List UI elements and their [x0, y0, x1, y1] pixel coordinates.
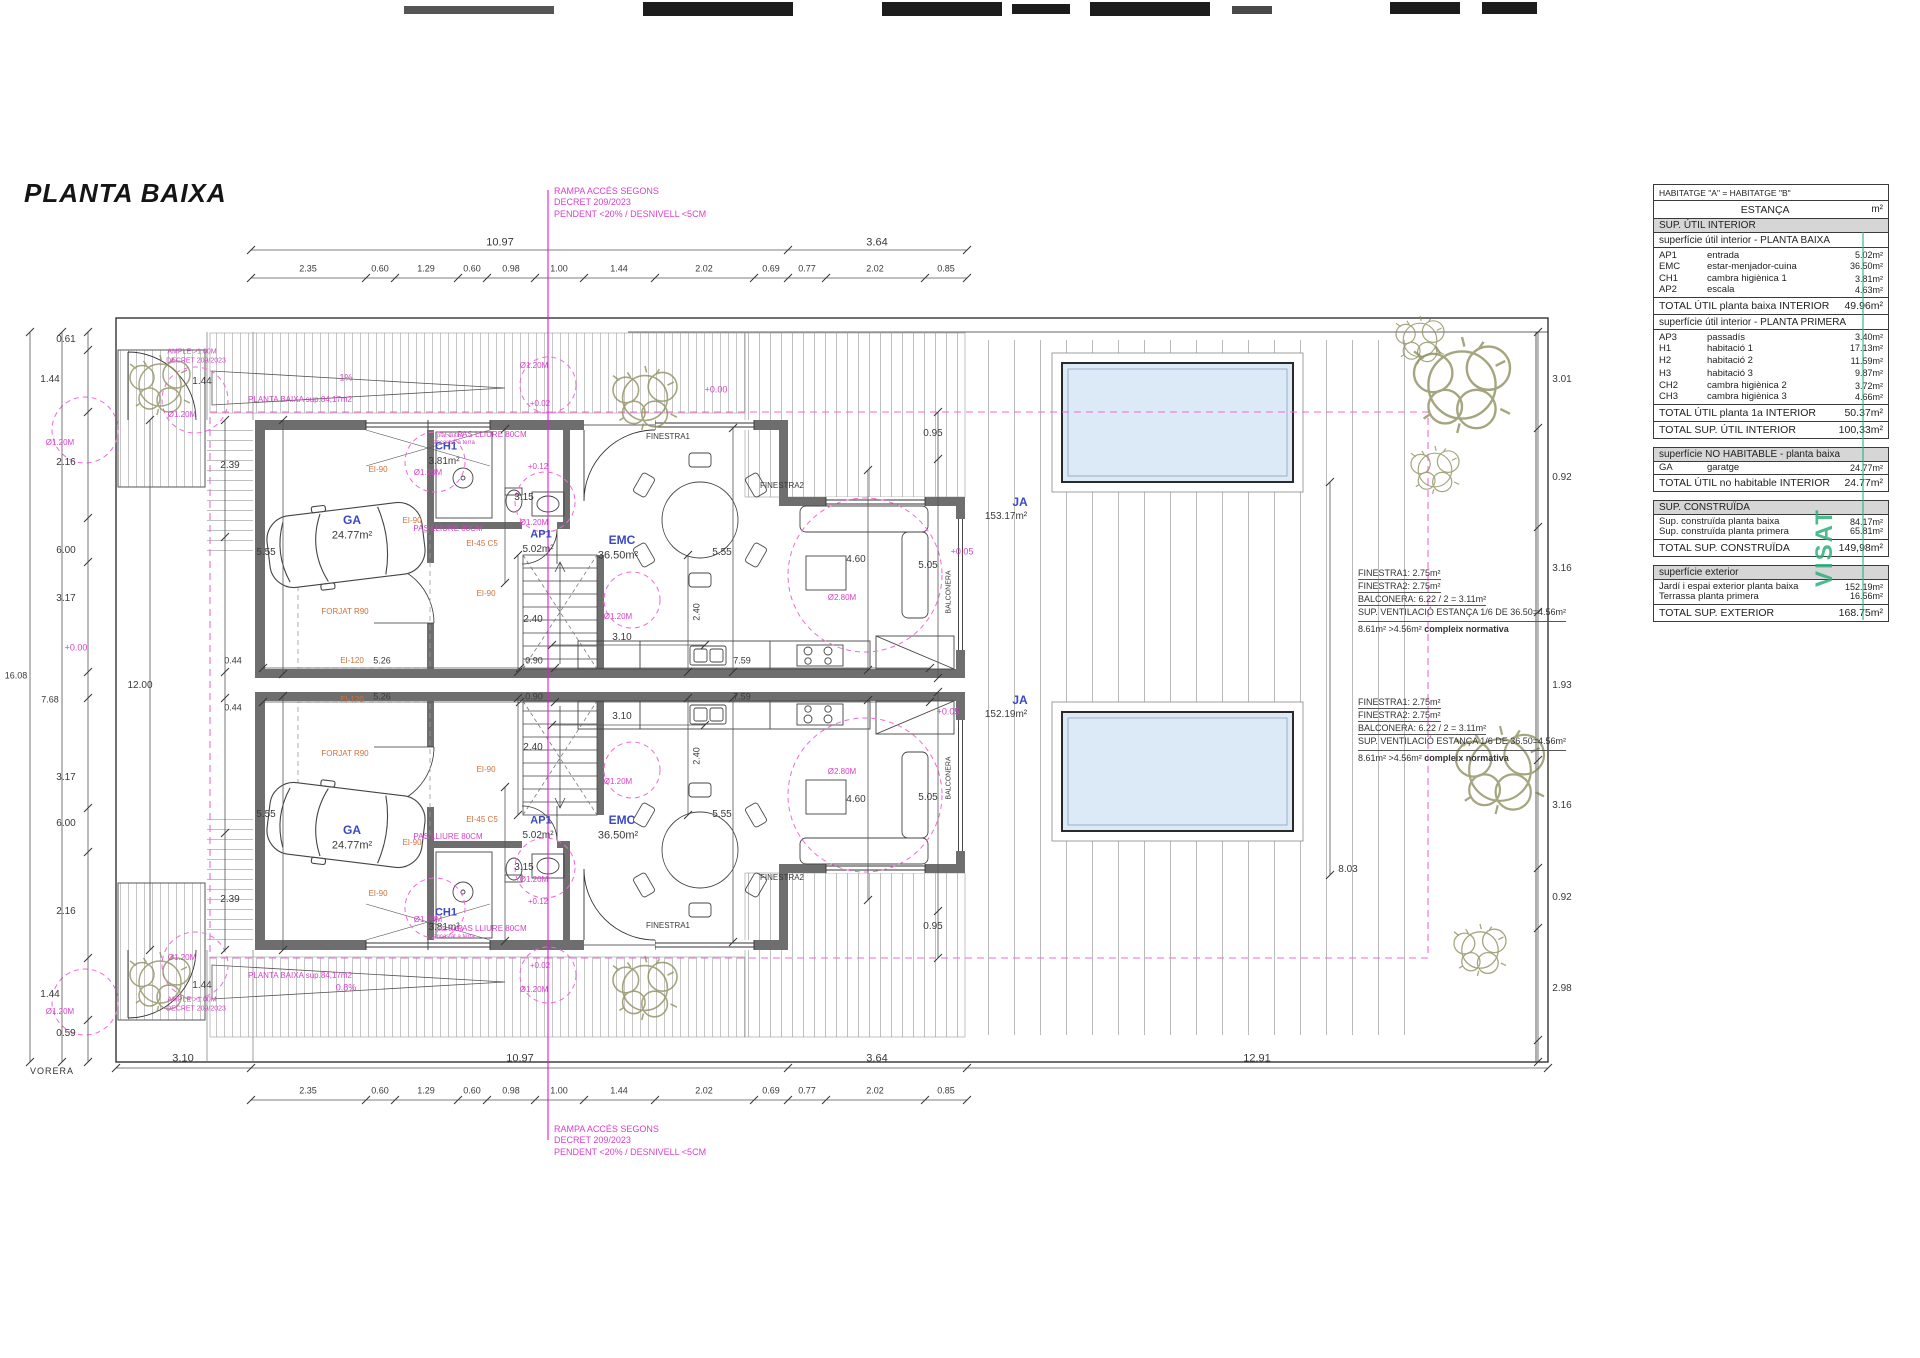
table-row: AP1entrada5.02m² — [1653, 247, 1889, 261]
plan-label: 0.60 — [463, 1087, 481, 1096]
table-row: H1habitació 117.13m² — [1653, 342, 1889, 356]
table-cell: habitació 3 — [1707, 368, 1831, 379]
ventilation-note-line: FINESTRA1: 2.75m² — [1358, 567, 1566, 580]
plan-label: 1.29 — [417, 1087, 435, 1096]
table-row: superfície NO HABITABLE - planta baixa — [1653, 447, 1889, 462]
ventilation-note-upper: FINESTRA1: 2.75m²FINESTRA2: 2.75m²BALCON… — [1358, 567, 1566, 634]
table-row: TOTAL ÚTIL no habitable INTERIOR24.77m² — [1653, 474, 1889, 492]
plan-label: 0.60 — [371, 1087, 389, 1096]
plan-label: DECRET 209/2023 — [166, 358, 226, 365]
plan-label: EMC — [609, 814, 636, 826]
ventilation-note-line: FINESTRA2: 2.75m² — [1358, 580, 1441, 593]
plan-label: 0.60 — [371, 265, 389, 274]
plan-label: 3.15 — [514, 493, 533, 503]
table-cell: superfície útil interior - PLANTA PRIMER… — [1659, 317, 1846, 328]
table-cell: AP1 — [1659, 250, 1707, 261]
plan-label: 1.00 — [550, 1087, 568, 1096]
ventilation-note-line: FINESTRA2: 2.75m² — [1358, 709, 1566, 722]
table-cell: cambra higiènica 2 — [1707, 380, 1831, 391]
plan-label: GA — [343, 824, 361, 836]
table-cell: 4.66m² — [1831, 392, 1883, 402]
table-row: superfície útil interior - PLANTA BAIXA — [1653, 232, 1889, 248]
table-cell: habitació 2 — [1707, 355, 1831, 366]
ventilation-note-line: FINESTRA1: 2.75m² — [1358, 567, 1441, 580]
plan-label: 3.10 — [172, 1054, 193, 1065]
plan-label: PLANTA BAIXA sup.84,17m2 — [248, 396, 352, 404]
table-cell: superfície útil interior - PLANTA BAIXA — [1659, 235, 1830, 246]
ventilation-note-line: FINESTRA2: 2.75m² — [1358, 580, 1566, 593]
plan-label: 5.02m² — [522, 545, 553, 555]
plan-label: plat dutxa — [437, 927, 463, 933]
plan-label: 2.16 — [56, 458, 75, 468]
plan-label: +0.12 — [528, 463, 548, 471]
plan-label: FINESTRA2 — [760, 482, 804, 490]
table-cell: TOTAL ÚTIL planta 1a INTERIOR — [1659, 407, 1816, 419]
table-cell: 149,98m² — [1839, 542, 1883, 554]
table-cell: H1 — [1659, 343, 1707, 354]
floor-plan-svg — [0, 0, 1920, 1358]
ventilation-note-line: 8.61m² >4.56m² compleix normativa — [1358, 750, 1566, 763]
plan-label: 16.08 — [5, 672, 28, 681]
table-row: TOTAL SUP. CONSTRUÏDA149,98m² — [1653, 539, 1889, 557]
plan-label: Ø1.20M — [520, 986, 548, 994]
ventilation-note-line: FINESTRA1: 2.75m² — [1358, 696, 1441, 709]
plan-label: EI-45 C5 — [466, 540, 498, 548]
plan-label: 3.64 — [866, 238, 887, 249]
table-cell: SUP. ÚTIL INTERIOR — [1659, 220, 1756, 231]
pool-upper — [1052, 353, 1303, 492]
plan-label: 3.01 — [1552, 375, 1571, 385]
plan-label: +0.00 — [705, 386, 728, 395]
table-row: TOTAL SUP. EXTERIOR168.75m² — [1653, 604, 1889, 622]
table-cell: 168.75m² — [1839, 607, 1883, 619]
plan-label: PAS LLIURE 80CM — [413, 525, 482, 533]
table-row: HABITATGE "A" = HABITATGE "B" — [1653, 184, 1889, 201]
plan-label: FORJAT R90 — [321, 608, 368, 616]
table-cell: Terrassa planta primera — [1659, 591, 1831, 602]
table-cell: passadís — [1707, 332, 1831, 343]
table-cell: 5.02m² — [1831, 250, 1883, 260]
ventilation-note-lower: FINESTRA1: 2.75m²FINESTRA2: 2.75m²BALCON… — [1358, 696, 1566, 763]
plan-label: 0.69 — [762, 265, 780, 274]
ventilation-note-line: BALCONERA: 6.22 / 2 = 3.11m² — [1358, 722, 1486, 735]
plan-label: 7.59 — [733, 657, 751, 666]
table-cell: GA — [1659, 462, 1707, 473]
table-cell: 84.17m² — [1831, 517, 1883, 527]
ramp-note-line: PENDENT <20% / DESNIVELL <5CM — [554, 1147, 706, 1158]
plan-label: plat dutxa — [437, 433, 463, 439]
pool-lower — [1052, 702, 1303, 841]
table-cell: SUP. CONSTRUÏDA — [1659, 502, 1750, 513]
plan-label: 1.44 — [610, 1087, 628, 1096]
plan-label: Ø1.20M — [46, 439, 74, 447]
plan-label: 1.29 — [417, 265, 435, 274]
plan-label: 0.59 — [56, 1029, 75, 1039]
plan-label: PAS LLIURE 80CM — [413, 833, 482, 841]
plan-label: 152.19m² — [985, 710, 1027, 720]
table-cell: H2 — [1659, 355, 1707, 366]
plan-label: 24.77m² — [332, 531, 372, 542]
plan-label: 5.55 — [256, 810, 275, 820]
plan-label: 3.10 — [612, 633, 631, 643]
plan-label: 0.77 — [798, 265, 816, 274]
table-cell: 16.56m² — [1831, 591, 1883, 601]
table-row: GAgaratge24.77m² — [1653, 461, 1889, 475]
plan-label: BALCONERA — [946, 756, 953, 799]
plan-label: 3.16 — [1552, 801, 1571, 811]
plan-label: 1.44 — [40, 375, 59, 385]
table-cell: 36.50m² — [1831, 261, 1883, 271]
plan-label: 3.17 — [56, 773, 75, 783]
table-cell: TOTAL ÚTIL no habitable INTERIOR — [1659, 477, 1830, 489]
plan-label: 2.02 — [866, 265, 884, 274]
plan-label: 0.8% — [336, 984, 357, 993]
plan-label: 3.15 — [514, 863, 533, 873]
plan-label: 2.39 — [220, 895, 239, 905]
table-cell: 3.81m² — [1831, 274, 1883, 284]
plan-label: PLANTA BAIXA sup.84,17m2 — [248, 972, 352, 980]
plan-label: 0.77 — [798, 1087, 816, 1096]
ventilation-note-line: FINESTRA1: 2.75m² — [1358, 696, 1566, 709]
table-cell: TOTAL SUP. ÚTIL INTERIOR — [1659, 424, 1796, 436]
plan-label: AP1 — [530, 530, 551, 541]
floor-plan-sheet: PLANTA BAIXA 10.973.642.350.601.290.600.… — [0, 0, 1920, 1358]
table-cell: garatge — [1707, 462, 1831, 473]
plan-label: 3.10 — [612, 712, 631, 722]
table-cell: H3 — [1659, 368, 1707, 379]
plan-label: 36.50m² — [598, 551, 638, 562]
plan-label: 0.98 — [502, 265, 520, 274]
table-cell: TOTAL SUP. CONSTRUÏDA — [1659, 542, 1790, 554]
plan-label: FINESTRA1 — [646, 922, 690, 930]
plan-label: FINESTRA2 — [760, 874, 804, 882]
plan-label: 24.77m² — [332, 841, 372, 852]
plan-label: Ø2.80M — [828, 768, 856, 776]
plan-label: 2.40 — [523, 615, 542, 625]
plan-label: 1.44 — [610, 265, 628, 274]
plan-label: 36.50m² — [598, 831, 638, 842]
plan-label: 2.40 — [693, 747, 702, 765]
ramp-note-top: RAMPA ACCÉS SEGONSDECRET 209/2023PENDENT… — [554, 186, 706, 220]
plan-label: 3.81m² — [428, 457, 459, 467]
ventilation-note-line: 8.61m² >4.56m² compleix normativa — [1358, 621, 1566, 634]
plan-label: Ø1.20M — [604, 613, 632, 621]
plan-label: 1% — [339, 374, 352, 383]
ventilation-note-line: FINESTRA2: 2.75m² — [1358, 709, 1441, 722]
plan-label: 153.17m² — [985, 512, 1027, 522]
table-cell: cambra higiènica 1 — [1707, 273, 1831, 284]
table-row: TOTAL ÚTIL planta baixa INTERIOR49.96m² — [1653, 297, 1889, 315]
plan-label: +0.05 — [937, 708, 960, 717]
visat-stamp: VISAT — [1811, 559, 1920, 587]
table-cell: 17.13m² — [1831, 343, 1883, 353]
plan-label: 2.40 — [693, 603, 702, 621]
table-row: H3habitació 39.87m² — [1653, 367, 1889, 381]
plan-label: FINESTRA1 — [646, 433, 690, 441]
plan-label: 10.97 — [486, 238, 514, 249]
plan-label: Ø1.20M — [604, 778, 632, 786]
table-cell: entrada — [1707, 250, 1831, 261]
page-title: PLANTA BAIXA — [24, 178, 227, 209]
plan-label: 0.44 — [224, 657, 242, 666]
plan-label: 2.40 — [523, 743, 542, 753]
plan-label: encastat a terra — [433, 934, 475, 940]
table-row: Terrassa planta primera16.56m² — [1653, 591, 1889, 605]
table-cell: 3.72m² — [1831, 381, 1883, 391]
plan-label: 5.05 — [918, 561, 937, 571]
plan-label: Ø1.20M — [520, 362, 548, 370]
table-cell: CH2 — [1659, 380, 1707, 391]
plan-label: 0.98 — [502, 1087, 520, 1096]
plan-label: 0.90 — [525, 693, 543, 702]
plan-label: 0.92 — [1552, 473, 1571, 483]
plan-label: EI-120 — [340, 657, 364, 665]
plan-label: +0.12 — [528, 898, 548, 906]
table-cell: m² — [1871, 204, 1883, 215]
plan-label: 5.55 — [712, 810, 731, 820]
plan-label: EI-90 — [476, 766, 495, 774]
plan-label: EI-90 — [368, 890, 387, 898]
ramp-note-line: DECRET 209/2023 — [554, 197, 706, 208]
plan-label: +0.05 — [951, 548, 974, 557]
plan-label: +0.02 — [530, 962, 550, 970]
plan-label: 2.35 — [299, 265, 317, 274]
table-cell: 9.87m² — [1831, 368, 1883, 378]
plan-label: 1.00 — [550, 265, 568, 274]
plan-label: JA — [1012, 694, 1027, 706]
plan-label: 3.17 — [56, 594, 75, 604]
table-cell: cambra higiènica 3 — [1707, 391, 1831, 402]
plan-label: EI-90 — [476, 590, 495, 598]
table-row: ESTANÇAm² — [1653, 200, 1889, 219]
plan-label: 0.61 — [56, 335, 75, 345]
table-row: H2habitació 211.59m² — [1653, 354, 1889, 368]
table-cell: AP2 — [1659, 284, 1707, 295]
plan-label: 0.95 — [923, 429, 942, 439]
table-row: AP2escala4.63m² — [1653, 285, 1889, 299]
plan-label: 0.44 — [224, 704, 242, 713]
ventilation-note-line: SUP. VENTILACIÓ ESTANÇA 1/6 DE 36.50=4.5… — [1358, 735, 1566, 747]
plan-label: 5.55 — [256, 548, 275, 558]
plan-label: 1.44 — [40, 990, 59, 1000]
table-row: CH3cambra higiènica 34.66m² — [1653, 392, 1889, 406]
table-cell: superfície exterior — [1659, 567, 1738, 578]
plan-label: AP1 — [530, 816, 551, 827]
ramp-note-line: RAMPA ACCÉS SEGONS — [554, 186, 706, 197]
plan-label: 5.26 — [373, 693, 391, 702]
table-row: TOTAL SUP. ÚTIL INTERIOR100,33m² — [1653, 421, 1889, 439]
plan-label: +0.00 — [65, 644, 88, 653]
table-cell: CH3 — [1659, 391, 1707, 402]
plan-label: 0.85 — [937, 1087, 955, 1096]
plan-label: BALCONERA — [946, 570, 953, 613]
table-row: EMCestar-menjador-cuina36.50m² — [1653, 260, 1889, 274]
sidewalk-label: VORERA — [30, 1066, 74, 1076]
table-row: SUP. ÚTIL INTERIOR — [1653, 218, 1889, 233]
ramp-note-line: PENDENT <20% / DESNIVELL <5CM — [554, 209, 706, 220]
table-cell: 11.59m² — [1831, 356, 1883, 366]
table-cell: habitació 1 — [1707, 343, 1831, 354]
plan-label: Ø1.20M — [520, 519, 548, 527]
plan-label: 4.60 — [846, 555, 865, 565]
table-cell: HABITATGE "A" = HABITATGE "B" — [1659, 188, 1791, 198]
table-row: AP3passadís3.40m² — [1653, 329, 1889, 343]
plan-label: 6.00 — [56, 546, 75, 556]
plan-label: 7.68 — [41, 696, 59, 705]
table-cell: ESTANÇA — [1659, 204, 1871, 216]
plan-label: Ø1.20M — [168, 954, 196, 962]
plan-label: 6.00 — [56, 819, 75, 829]
plan-label: 1.93 — [1552, 681, 1571, 691]
table-cell: 4.63m² — [1831, 285, 1883, 295]
plan-label: 8.03 — [1338, 865, 1357, 875]
plan-label: PAS LLIURE 80CM — [457, 925, 526, 933]
ventilation-note-line: BALCONERA: 6.22 / 2 = 3.11m² — [1358, 593, 1566, 606]
plan-label: EI-90 — [368, 466, 387, 474]
plan-label: JA — [1012, 496, 1027, 508]
plan-label: EI-45 C5 — [466, 816, 498, 824]
plan-label: PAS LLIURE 80CM — [457, 431, 526, 439]
plan-label: 2.39 — [220, 461, 239, 471]
plan-label: 0.95 — [923, 922, 942, 932]
plan-label: Ø1.20M — [168, 411, 196, 419]
plan-label: EI-120 — [340, 696, 364, 704]
table-cell: CH1 — [1659, 273, 1707, 284]
table-cell: AP3 — [1659, 332, 1707, 343]
table-cell: escala — [1707, 284, 1831, 295]
plan-label: 2.02 — [695, 265, 713, 274]
unit-a — [118, 333, 965, 678]
table-cell: 3.40m² — [1831, 332, 1883, 342]
plan-label: GA — [343, 514, 361, 526]
ventilation-note-line: BALCONERA: 6.22 / 2 = 3.11m² — [1358, 593, 1486, 606]
plan-label: FORJAT R90 — [321, 750, 368, 758]
plan-label: 0.69 — [762, 1087, 780, 1096]
ventilation-note-line: SUP. VENTILACIÓ ESTANÇA 1/6 DE 36.50=4.5… — [1358, 606, 1566, 618]
plan-label: Ø1.20M — [414, 916, 442, 924]
plan-label: 7.59 — [733, 693, 751, 702]
table-cell: TOTAL ÚTIL planta baixa INTERIOR — [1659, 300, 1829, 312]
plan-label: 5.26 — [373, 657, 391, 666]
plan-label: AMPLE >1.00M — [167, 349, 216, 356]
ventilation-note-line: compleix normativa — [1424, 753, 1509, 763]
table-cell: 65.81m² — [1831, 526, 1883, 536]
table-cell: estar-menjador-cuina — [1707, 261, 1831, 272]
plan-label: 3.64 — [866, 1054, 887, 1065]
table-cell: TOTAL SUP. EXTERIOR — [1659, 607, 1774, 619]
plan-label: 2.35 — [299, 1087, 317, 1096]
plan-label: 2.98 — [1552, 984, 1571, 994]
plan-label: +0.02 — [530, 400, 550, 408]
plan-label: 5.05 — [918, 793, 937, 803]
plan-label: encastat a terra — [433, 440, 475, 446]
plan-label: 0.85 — [937, 265, 955, 274]
plan-label: 0.90 — [525, 657, 543, 666]
plan-label: 12.91 — [1243, 1054, 1271, 1065]
plan-label: 2.16 — [56, 907, 75, 917]
plan-label: 1.44 — [192, 981, 211, 991]
plan-label: 12.00 — [127, 681, 152, 691]
plan-label: 0.92 — [1552, 893, 1571, 903]
ramp-note-bottom: RAMPA ACCÉS SEGONSDECRET 209/2023PENDENT… — [554, 1124, 706, 1158]
table-cell: 24.77m² — [1831, 463, 1883, 473]
ventilation-note-line: compleix normativa — [1424, 624, 1509, 634]
table-cell: superfície NO HABITABLE - planta baixa — [1659, 449, 1840, 460]
ramp-note-line: DECRET 209/2023 — [554, 1135, 706, 1146]
table-cell: Sup. construïda planta primera — [1659, 526, 1831, 537]
plan-label: Ø1.20M — [520, 876, 548, 884]
ramp-note-line: RAMPA ACCÉS SEGONS — [554, 1124, 706, 1135]
table-cell: EMC — [1659, 261, 1707, 272]
table-row: TOTAL ÚTIL planta 1a INTERIOR50.37m² — [1653, 404, 1889, 422]
table-row: Sup. construïda planta primera65.81m² — [1653, 526, 1889, 540]
plan-label: 5.55 — [712, 548, 731, 558]
plan-label: 4.60 — [846, 795, 865, 805]
plan-label: 2.02 — [695, 1087, 713, 1096]
plan-label: AMPLE >1.00M — [167, 997, 216, 1004]
ventilation-note-line: BALCONERA: 6.22 / 2 = 3.11m² — [1358, 722, 1566, 735]
plan-label: 10.97 — [506, 1054, 534, 1065]
plan-label: 1.44 — [192, 377, 211, 387]
table-row: SUP. CONSTRUÏDA — [1653, 500, 1889, 515]
plan-label: 2.02 — [866, 1087, 884, 1096]
plan-label: EMC — [609, 534, 636, 546]
plan-label: Ø2.80M — [828, 594, 856, 602]
area-tables-panel: HABITATGE "A" = HABITATGE "B"ESTANÇAm²SU… — [1653, 185, 1889, 622]
plan-label: DECRET 209/2023 — [166, 1006, 226, 1013]
table-row: superfície útil interior - PLANTA PRIMER… — [1653, 314, 1889, 330]
plan-label: Ø1.20M — [46, 1008, 74, 1016]
table-cell: 100,33m² — [1839, 424, 1883, 436]
plan-label: 0.60 — [463, 265, 481, 274]
plan-label: 5.02m² — [522, 831, 553, 841]
plan-label: Ø1.20M — [414, 469, 442, 477]
